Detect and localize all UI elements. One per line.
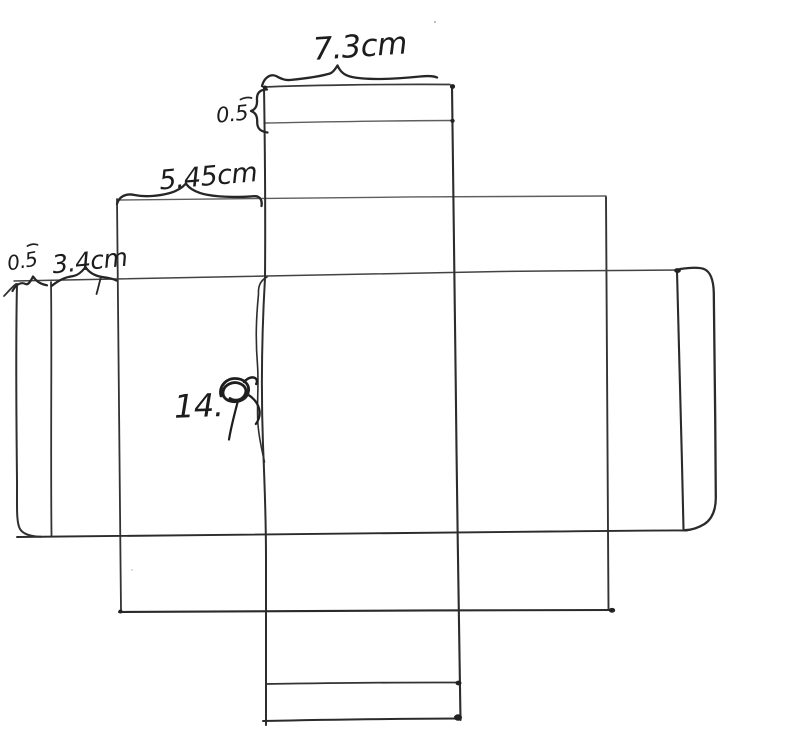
box-net-sketch: 7.3cm 0.5 5.45cm 0.5 3.4cm 14. [0, 0, 800, 751]
pen-blob [609, 608, 615, 613]
middle-height-label: 14. [173, 386, 224, 426]
bottom-flap-fold-line [266, 682, 458, 684]
center-column-left-edge [262, 87, 266, 725]
pen-blob [456, 681, 462, 686]
left-flap-fold-line [51, 282, 52, 536]
dimension-annotations: 7.3cm 0.5 5.45cm 0.5 3.4cm 14. [5, 25, 437, 439]
pen-blob [450, 84, 455, 89]
center-column-right-edge [452, 86, 461, 720]
top-flap-fold-line [264, 121, 452, 124]
middle-height-scribble-tail [229, 403, 238, 440]
pen-blob [674, 268, 681, 273]
left-flap-outer-edge [16, 284, 41, 537]
top-flap-depth-overbar [241, 98, 252, 100]
upper-band-top-edge [117, 196, 606, 200]
pen-blob [454, 714, 462, 720]
top-width-label: 7.3cm [312, 25, 408, 67]
scan-speck [131, 569, 133, 571]
pen-blob [450, 119, 454, 123]
bottom-flap-bottom-edge [263, 719, 460, 722]
left-flap-width-label: 0.5 [5, 247, 39, 276]
left-flap-width-overbar [28, 244, 38, 246]
top-width-brace [262, 66, 437, 87]
box-net-sketch-page: 7.3cm 0.5 5.45cm 0.5 3.4cm 14. [0, 0, 800, 751]
right-flap-fold-line [677, 271, 684, 529]
upper-band-bottom-edge [119, 610, 612, 612]
scan-speck [434, 21, 436, 23]
upper-band-right-edge [606, 197, 609, 609]
upper-width-label: 5.45cm [158, 157, 259, 196]
top-flap-depth-label: 0.5 [215, 100, 249, 127]
middle-band-bottom-edge [17, 530, 687, 537]
pen-blob [119, 610, 123, 614]
right-flap-outer-edge [680, 268, 716, 530]
top-flap-top-edge [263, 84, 450, 87]
box-net-outline [4, 21, 716, 725]
